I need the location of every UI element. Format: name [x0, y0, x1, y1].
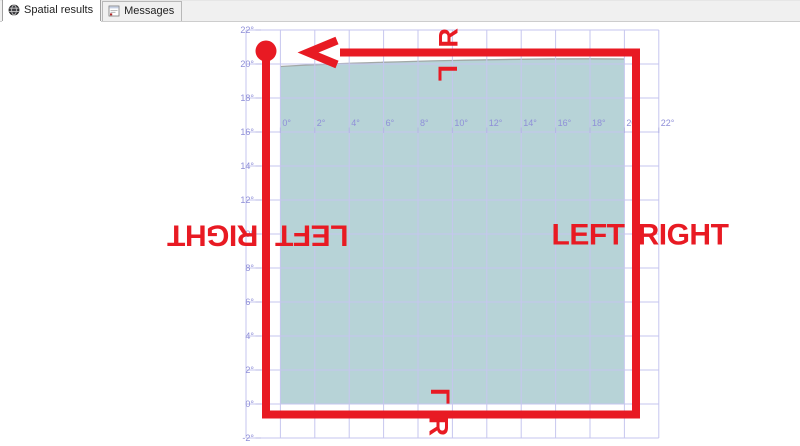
- x-axis-label: 4°: [351, 118, 360, 128]
- tab-messages-label: Messages: [124, 5, 174, 17]
- y-axis-label: 6°: [245, 297, 254, 307]
- route-side-label-top-inside: L: [433, 65, 463, 81]
- y-axis-label: 16°: [240, 127, 254, 137]
- route-start-marker: [256, 41, 277, 62]
- tab-strip: Spatial results Messages: [0, 0, 800, 22]
- y-axis-label: 14°: [240, 161, 254, 171]
- route-side-label-left-inside: LEFT: [275, 219, 348, 252]
- y-axis-label: 18°: [240, 93, 254, 103]
- x-axis-label: 14°: [523, 118, 537, 128]
- x-axis-label: 10°: [454, 118, 468, 128]
- x-axis-label: 2°: [317, 118, 326, 128]
- x-axis-label: 8°: [420, 118, 429, 128]
- route-arrow-left-icon: [308, 41, 337, 65]
- y-axis-label: 0°: [245, 399, 254, 409]
- route-side-label-top-outside: R: [433, 29, 463, 48]
- spatial-results-viewer: 22°20°18°16°14°12°10°8°6°4°2°0°-2°0°2°4°…: [0, 0, 800, 446]
- globe-icon: [8, 4, 20, 16]
- tab-messages[interactable]: Messages: [102, 1, 182, 21]
- y-axis-label: 4°: [245, 331, 254, 341]
- spatial-chart-canvas: 22°20°18°16°14°12°10°8°6°4°2°0°-2°0°2°4°…: [0, 0, 800, 446]
- x-axis-label: 6°: [386, 118, 395, 128]
- route-side-label-right-inside: LEFT: [552, 219, 625, 252]
- y-axis-label: 20°: [240, 59, 254, 69]
- x-axis-label: 22°: [661, 118, 675, 128]
- route-side-label-bottom-inside: L: [425, 388, 455, 404]
- y-axis-label: 8°: [245, 263, 254, 273]
- x-axis-label: 0°: [282, 118, 291, 128]
- route-side-label-right-outside: RIGHT: [638, 219, 729, 252]
- route-side-label-left-outside: RIGHT: [167, 219, 258, 252]
- route-side-label-bottom-outside: R: [424, 417, 454, 436]
- y-axis-label: 12°: [240, 195, 254, 205]
- tab-spatial-results[interactable]: Spatial results: [2, 0, 101, 21]
- messages-icon: [108, 5, 120, 17]
- y-axis-label: 2°: [245, 365, 254, 375]
- x-axis-label: 12°: [489, 118, 503, 128]
- x-axis-label: 18°: [592, 118, 606, 128]
- x-axis-label: 16°: [558, 118, 572, 128]
- tab-spatial-results-label: Spatial results: [24, 4, 93, 16]
- y-axis-label: 22°: [240, 25, 254, 35]
- y-axis-label: -2°: [242, 433, 254, 443]
